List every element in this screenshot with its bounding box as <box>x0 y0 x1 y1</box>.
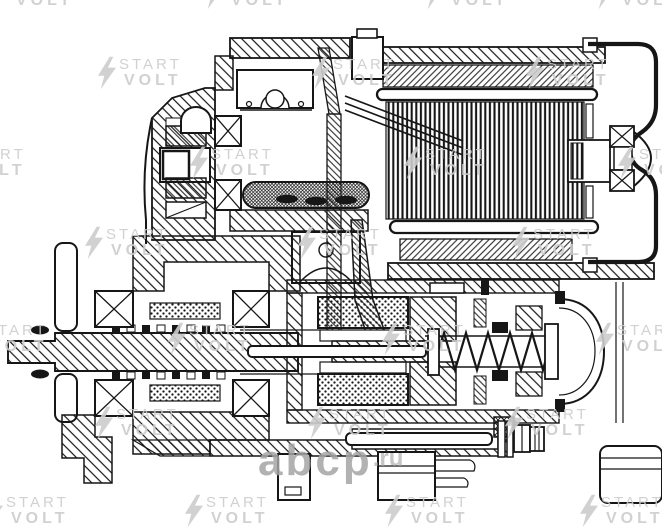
terminal-block <box>352 37 383 79</box>
bracket-web-upper <box>133 236 300 291</box>
shaft-seal-lower <box>31 370 49 379</box>
terminal-rod <box>346 433 492 445</box>
contact-stud-upper <box>492 322 508 333</box>
brand-watermark-volt: VOLT <box>11 511 69 527</box>
armature-windings <box>386 102 584 219</box>
front-foot <box>62 415 112 483</box>
shaft-seal-upper <box>31 326 49 335</box>
needle-bearing-upper <box>150 303 220 319</box>
solenoid-coil-upper <box>318 297 408 328</box>
needle-bearing-lower <box>150 385 220 401</box>
plunger-rod <box>248 346 426 357</box>
solenoid-boot <box>559 299 604 404</box>
mounting-flange-upper <box>55 243 77 331</box>
pole-shoe-lower <box>390 221 598 233</box>
solenoid-assembly <box>248 278 623 423</box>
cross-section-drawing <box>0 0 662 509</box>
rear-foot <box>600 446 662 503</box>
brand-watermark-volt: VOLT <box>211 511 269 527</box>
solenoid-coil-lower <box>318 374 408 405</box>
starter-motor-cross-section <box>0 0 662 509</box>
brand-watermark-volt: VOLT <box>606 511 662 527</box>
contact-stud-lower <box>492 370 508 381</box>
brand-watermark-volt: VOLT <box>411 511 469 527</box>
connector-housing <box>378 452 435 500</box>
pole-shoe-upper <box>377 89 597 100</box>
starter-motor-diagram-stage: abcp.ru START VOLT START VOLT START VOLT <box>0 0 662 509</box>
technical-drawing-page: { "colors": { "paper": "#ffffff", "ink":… <box>0 0 662 509</box>
